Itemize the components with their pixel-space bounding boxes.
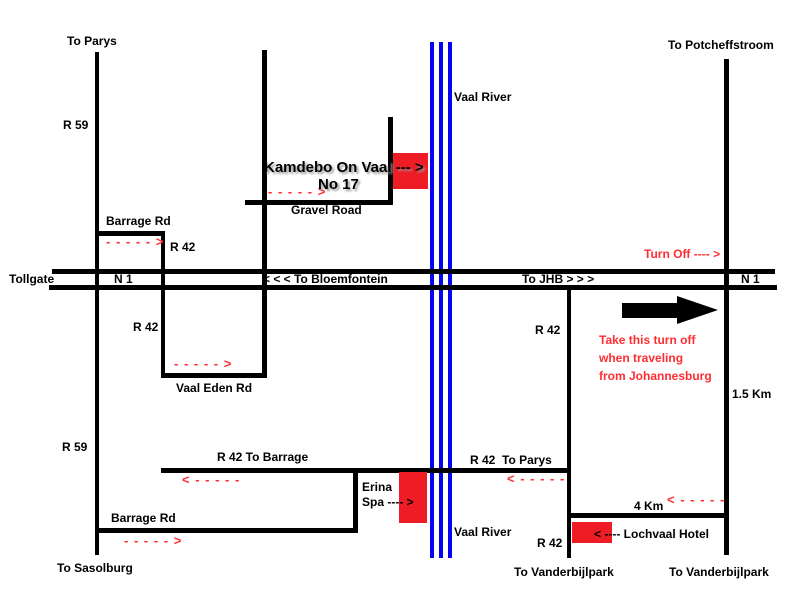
label-r42-bottom: R 42 xyxy=(537,537,562,550)
label-n1-left: N 1 xyxy=(114,273,133,286)
label-erina-line1: Erina xyxy=(362,481,392,494)
label-distance-4km: 4 Km xyxy=(634,500,663,513)
label-take-turnoff-line3: from Johannesburg xyxy=(599,370,712,383)
label-to-vanderbijlpark-left: To Vanderbijlpark xyxy=(514,566,614,579)
road-n1-bottom-line xyxy=(49,285,777,290)
label-r42-mid-right: R 42 xyxy=(535,324,560,337)
vaal-river-line-1 xyxy=(430,42,434,558)
road-gravel-vertical xyxy=(262,50,267,378)
label-to-bloemfontein: < < < To Bloemfontein xyxy=(263,273,388,286)
label-r42-mid-left: R 42 xyxy=(133,321,158,334)
road-n1-top-line xyxy=(52,269,775,274)
label-barrage-rd-top: Barrage Rd xyxy=(106,215,171,228)
label-r42-to-barrage: R 42 To Barrage xyxy=(217,451,308,464)
label-to-sasolburg: To Sasolburg xyxy=(57,562,133,575)
label-to-vanderbijlpark-right: To Vanderbijlpark xyxy=(669,566,769,579)
dashed-arrow-left-r42-barrage-icon: < - - - - - xyxy=(182,473,240,486)
dashed-arrow-right-vaal-eden-icon: - - - - - > xyxy=(174,357,232,370)
label-take-turnoff-line1: Take this turn off xyxy=(599,334,695,347)
label-to-parys: To Parys xyxy=(67,35,117,48)
label-r42-top: R 42 xyxy=(170,241,195,254)
directions-map: To Parys To Potcheffstroom To Sasolburg … xyxy=(0,0,800,600)
label-distance-1-5km: 1.5 Km xyxy=(732,388,771,401)
label-kamdebo-title: Kamdebo On Vaal --- > xyxy=(264,160,424,176)
label-r59-bottom: R 59 xyxy=(62,441,87,454)
turnoff-arrow-icon xyxy=(622,303,678,318)
dashed-arrow-right-barrage-top-icon: - - - - - > xyxy=(106,235,164,248)
turnoff-arrowhead-icon xyxy=(677,296,718,324)
label-lochvaal-hotel: < ---- Lochvaal Hotel xyxy=(594,528,709,541)
label-tollgate: Tollgate xyxy=(9,273,54,286)
label-to-potcheffstroom: To Potcheffstroom xyxy=(668,39,774,52)
label-take-turnoff-line2: when traveling xyxy=(599,352,683,365)
label-erina-line2: Spa ---- > xyxy=(362,496,414,509)
label-vaal-river-bottom: Vaal River xyxy=(454,526,511,539)
dashed-arrow-left-4km-icon: < - - - - - xyxy=(667,493,725,506)
label-vaal-eden-rd: Vaal Eden Rd xyxy=(176,382,252,395)
label-turn-off: Turn Off ---- > xyxy=(644,248,720,261)
road-vaal-eden-horizontal xyxy=(161,373,267,378)
label-r59-top: R 59 xyxy=(63,119,88,132)
label-kamdebo-number: No 17 xyxy=(318,177,359,193)
label-barrage-rd-bottom: Barrage Rd xyxy=(111,512,176,525)
label-gravel-road: Gravel Road xyxy=(291,204,362,217)
vaal-river-line-2 xyxy=(439,42,443,558)
dashed-arrow-left-r42-parys-icon: < - - - - - xyxy=(507,472,565,485)
label-n1-right: N 1 xyxy=(741,273,760,286)
road-potcheffstroom-vertical xyxy=(724,59,729,555)
road-r59-vertical xyxy=(95,52,99,555)
label-vaal-river-top: Vaal River xyxy=(454,91,511,104)
road-barrage-connector-vertical xyxy=(353,469,358,532)
road-r42-vertical xyxy=(161,231,165,378)
vaal-river-line-3 xyxy=(448,42,452,558)
road-lochvaal-horizontal xyxy=(567,513,728,518)
label-r42-to-parys: R 42 To Parys xyxy=(470,454,552,467)
dashed-arrow-right-barrage-bottom-icon: - - - - - > xyxy=(124,534,182,547)
label-to-jhb: To JHB > > > xyxy=(522,273,594,286)
